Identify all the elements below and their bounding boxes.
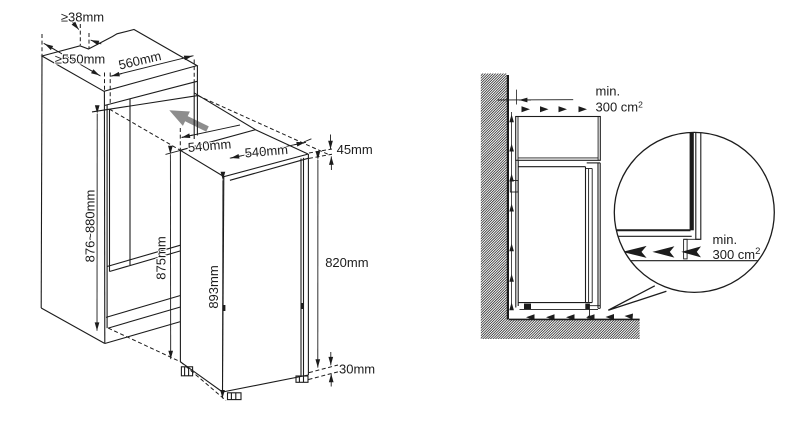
svg-text:300 cm2: 300 cm2 — [713, 246, 761, 262]
svg-text:45mm: 45mm — [337, 142, 373, 157]
svg-text:≥550mm: ≥550mm — [55, 51, 105, 66]
svg-text:min.: min. — [713, 232, 738, 247]
svg-text:30mm: 30mm — [339, 362, 375, 377]
svg-text:300 cm2: 300 cm2 — [596, 99, 644, 114]
svg-text:820mm: 820mm — [325, 255, 368, 270]
svg-text:≥38mm: ≥38mm — [61, 9, 104, 24]
svg-text:893mm: 893mm — [206, 265, 221, 308]
svg-text:875mm: 875mm — [154, 236, 169, 279]
svg-text:min.: min. — [596, 83, 621, 98]
svg-text:876~880mm: 876~880mm — [83, 190, 98, 263]
